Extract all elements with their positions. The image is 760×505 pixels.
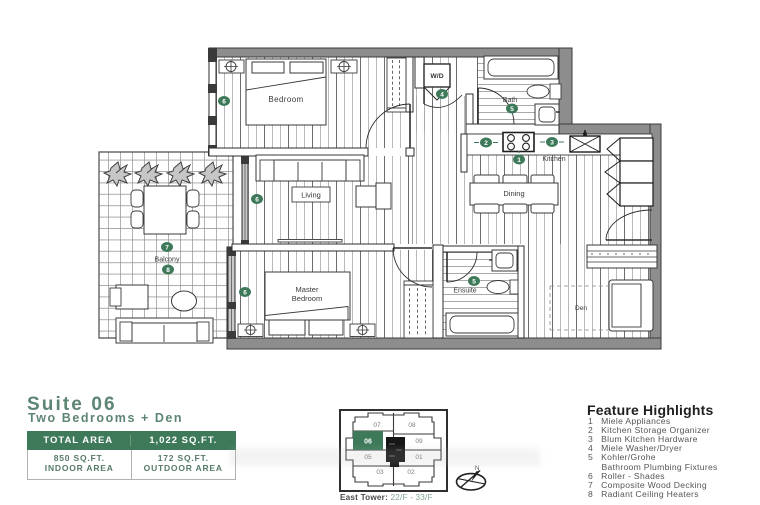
svg-text:6: 6	[255, 197, 259, 204]
svg-text:Ensuite: Ensuite	[453, 288, 476, 295]
svg-text:Kitchen: Kitchen	[542, 156, 565, 163]
svg-text:Balcony: Balcony	[155, 257, 180, 264]
svg-text:03: 03	[376, 469, 384, 476]
svg-text:N: N	[475, 466, 479, 472]
svg-text:Bath: Bath	[503, 97, 518, 104]
svg-text:Den: Den	[575, 305, 587, 312]
svg-text:3: 3	[550, 140, 554, 147]
svg-text:09: 09	[415, 438, 423, 445]
svg-text:W/D: W/D	[430, 73, 443, 80]
svg-text:4: 4	[440, 92, 444, 99]
svg-text:5: 5	[472, 279, 476, 286]
svg-text:2: 2	[484, 140, 488, 147]
svg-text:6: 6	[243, 290, 247, 297]
svg-text:02: 02	[407, 469, 415, 476]
svg-text:08: 08	[408, 422, 416, 429]
svg-text:Living: Living	[301, 191, 321, 200]
svg-text:Dining: Dining	[503, 189, 524, 198]
svg-text:8: 8	[166, 267, 170, 274]
svg-text:Master: Master	[296, 285, 319, 294]
svg-text:07: 07	[373, 422, 381, 429]
svg-text:6: 6	[222, 99, 226, 106]
svg-text:Bedroom: Bedroom	[268, 95, 303, 104]
svg-text:06: 06	[364, 439, 372, 446]
svg-text:1: 1	[517, 157, 521, 164]
svg-text:Bedroom: Bedroom	[292, 294, 322, 303]
svg-text:5: 5	[510, 106, 514, 113]
svg-text:7: 7	[165, 245, 169, 252]
